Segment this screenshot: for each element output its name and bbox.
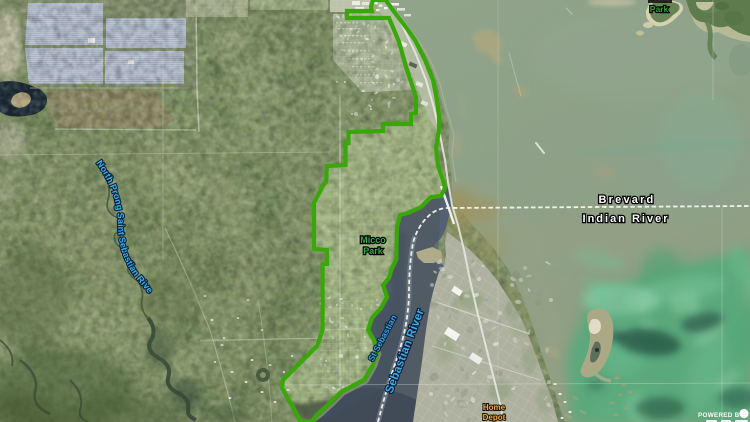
- svg-text:Home: Home: [483, 403, 506, 412]
- svg-text:Depot: Depot: [483, 413, 506, 422]
- svg-text:Park: Park: [650, 4, 669, 14]
- svg-text:Brevard: Brevard: [599, 194, 656, 206]
- svg-text:Indian River: Indian River: [583, 213, 670, 225]
- svg-text:Micco: Micco: [360, 235, 386, 245]
- svg-text:POWERED BY: POWERED BY: [698, 412, 745, 419]
- svg-text:Park: Park: [363, 246, 384, 256]
